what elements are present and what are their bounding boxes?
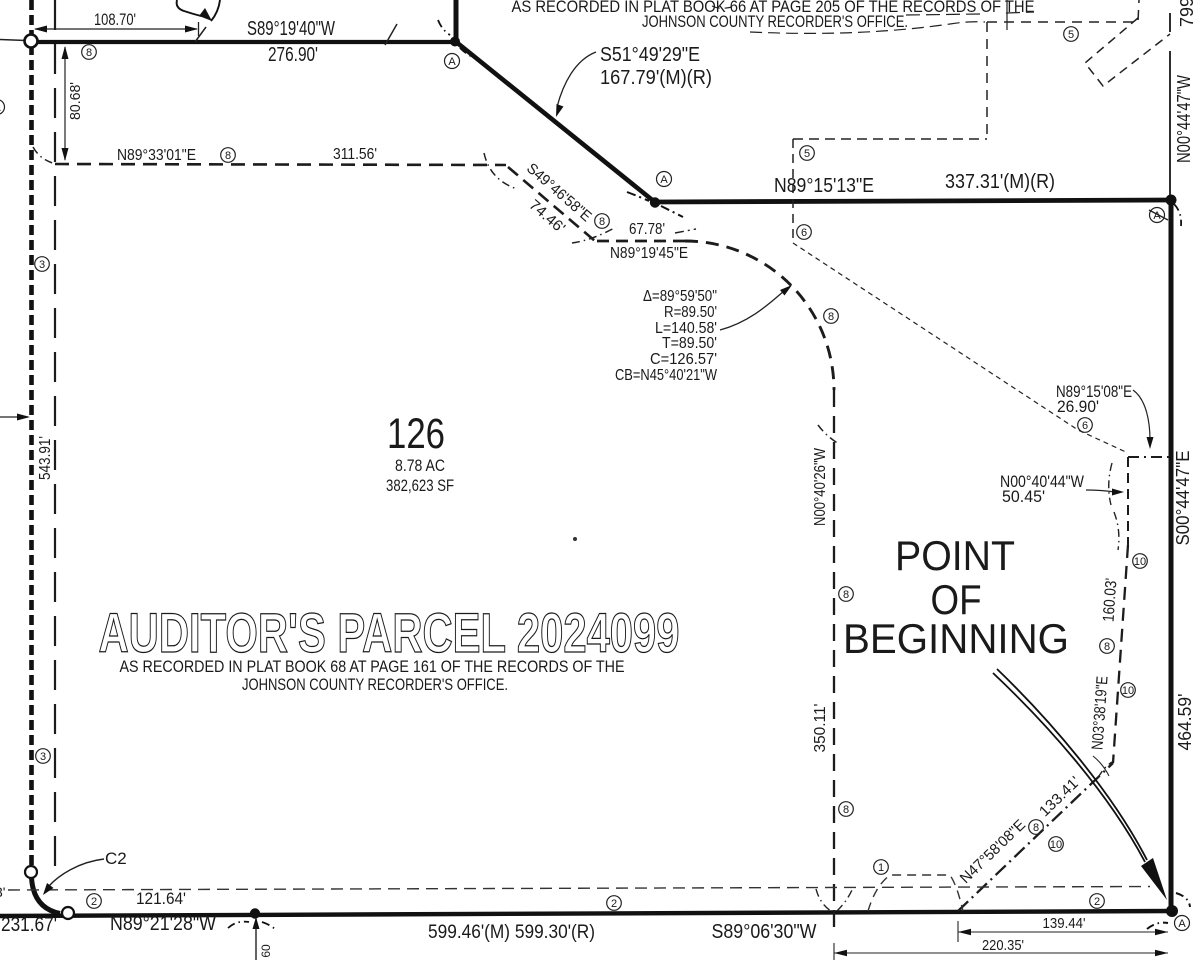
- svg-text:8: 8: [843, 804, 849, 816]
- svg-text:8: 8: [599, 216, 605, 228]
- svg-text:N00°44'47"W: N00°44'47"W: [1174, 75, 1194, 163]
- svg-text:S89°06'30"W: S89°06'30"W: [712, 921, 817, 943]
- svg-text:A: A: [448, 56, 456, 68]
- svg-text:N47°58'08"E: N47°58'08"E: [957, 816, 1029, 887]
- svg-text:599.46'(M) 599.30'(R): 599.46'(M) 599.30'(R): [428, 922, 595, 943]
- svg-text:8: 8: [828, 311, 834, 323]
- svg-text:BEGINNING: BEGINNING: [843, 615, 1069, 662]
- svg-text:220.35': 220.35': [982, 937, 1024, 954]
- svg-text:CB=N45°40'21"W: CB=N45°40'21"W: [615, 367, 718, 384]
- svg-text:N89°33'01"E: N89°33'01"E: [117, 147, 196, 164]
- svg-text:126: 126: [387, 410, 445, 458]
- svg-text:C2: C2: [105, 849, 127, 868]
- svg-text:JOHNSON COUNTY RECORDER'S OFFI: JOHNSON COUNTY RECORDER'S OFFICE.: [242, 675, 508, 694]
- svg-text:A: A: [660, 174, 668, 186]
- svg-text:67.78': 67.78': [629, 221, 665, 238]
- svg-text:382,623 SF: 382,623 SF: [386, 476, 454, 495]
- svg-text:8: 8: [86, 47, 92, 59]
- svg-text:3: 3: [40, 751, 46, 763]
- svg-text:799: 799: [1177, 0, 1197, 27]
- svg-text:10: 10: [1050, 839, 1062, 851]
- svg-text:167.79'(M)(R): 167.79'(M)(R): [600, 67, 712, 89]
- svg-text:AS RECORDED IN PLAT BOOK 68 AT: AS RECORDED IN PLAT BOOK 68 AT PAGE 161 …: [120, 657, 625, 676]
- svg-text:POINT: POINT: [895, 532, 1015, 579]
- svg-text:A: A: [1153, 210, 1161, 222]
- svg-text:108.70': 108.70': [94, 10, 136, 29]
- svg-text:S00°44'47"E: S00°44'47"E: [1173, 451, 1193, 546]
- svg-text:10: 10: [1122, 685, 1134, 697]
- svg-text:337.31'(M)(R): 337.31'(M)(R): [945, 171, 1055, 193]
- svg-text:8.78 AC: 8.78 AC: [395, 456, 445, 475]
- svg-text:S89°19'40"W: S89°19'40"W: [247, 18, 335, 40]
- svg-text:N00°40'26"W: N00°40'26"W: [812, 447, 829, 526]
- svg-text:A: A: [1178, 918, 1186, 930]
- svg-text:464.59': 464.59': [1175, 694, 1195, 751]
- svg-text:A: A: [0, 102, 1, 114]
- svg-text:R=89.50': R=89.50': [664, 304, 717, 321]
- svg-text:5: 5: [804, 148, 810, 160]
- svg-text:JOHNSON COUNTY RECORDER'S OFFI: JOHNSON COUNTY RECORDER'S OFFICE.: [642, 12, 908, 31]
- svg-text:6: 6: [1082, 420, 1088, 432]
- svg-text:1: 1: [878, 862, 884, 874]
- svg-text:311.56': 311.56': [333, 146, 377, 163]
- svg-text:N89°19'45"E: N89°19'45"E: [610, 245, 688, 262]
- svg-text:160.03': 160.03': [1100, 577, 1120, 622]
- svg-text:8: 8: [843, 589, 849, 601]
- svg-text:10: 10: [1134, 556, 1146, 568]
- svg-text:60: 60: [259, 944, 273, 958]
- svg-text:350.11': 350.11': [812, 704, 829, 753]
- svg-text:N89°21'28"W: N89°21'28"W: [110, 913, 216, 935]
- svg-text:543.91': 543.91': [37, 436, 54, 480]
- svg-text:3': 3': [0, 884, 5, 900]
- svg-text:Δ=89°59'50": Δ=89°59'50": [643, 288, 717, 305]
- svg-text:8: 8: [225, 150, 231, 162]
- svg-text:AUDITOR'S PARCEL 2024099: AUDITOR'S PARCEL 2024099: [99, 601, 680, 664]
- svg-text:50.45': 50.45': [1002, 487, 1045, 506]
- svg-text:80.68': 80.68': [67, 82, 84, 120]
- svg-text:231.67': 231.67': [1, 914, 57, 936]
- svg-text:2: 2: [1094, 896, 1100, 908]
- svg-text:T=89.50': T=89.50': [662, 335, 717, 352]
- svg-text:2: 2: [611, 898, 617, 910]
- svg-text:139.44': 139.44': [1043, 915, 1086, 932]
- svg-text:C=126.57': C=126.57': [650, 351, 717, 368]
- svg-text:N89°15'13"E: N89°15'13"E: [774, 175, 874, 197]
- svg-text:N03°38'19"E: N03°38'19"E: [1089, 676, 1111, 751]
- svg-text:5: 5: [1068, 29, 1074, 41]
- svg-text:121.64': 121.64': [136, 889, 186, 908]
- svg-text:26.90': 26.90': [1057, 397, 1099, 416]
- svg-text:6: 6: [801, 227, 807, 239]
- svg-text:S51°49'29"E: S51°49'29"E: [600, 44, 700, 66]
- svg-text:3: 3: [39, 259, 45, 271]
- svg-text:8: 8: [1104, 641, 1110, 653]
- svg-text:8: 8: [1033, 822, 1039, 834]
- svg-text:2: 2: [91, 896, 97, 908]
- svg-text:276.90': 276.90': [268, 44, 318, 66]
